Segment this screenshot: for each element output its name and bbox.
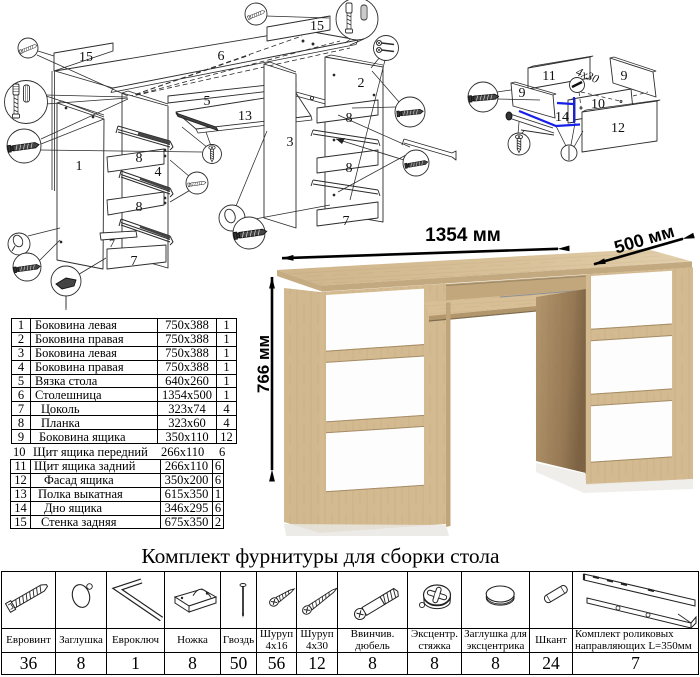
- svg-text:8: 8: [136, 200, 143, 215]
- svg-text:766 мм: 766 мм: [254, 335, 273, 393]
- svg-text:15: 15: [79, 50, 93, 65]
- svg-text:11: 11: [542, 69, 555, 84]
- svg-text:9: 9: [621, 69, 628, 84]
- svg-text:14: 14: [555, 110, 569, 125]
- svg-text:7: 7: [131, 254, 138, 269]
- svg-text:5: 5: [204, 94, 211, 109]
- svg-text:1354 мм: 1354 мм: [425, 225, 501, 246]
- svg-text:8: 8: [346, 161, 353, 176]
- svg-text:3: 3: [287, 135, 294, 150]
- svg-text:7: 7: [109, 236, 115, 250]
- svg-text:6: 6: [218, 49, 225, 64]
- svg-text:12: 12: [611, 121, 625, 136]
- svg-text:10: 10: [591, 97, 605, 112]
- svg-text:8: 8: [136, 151, 143, 166]
- svg-text:7: 7: [343, 214, 350, 229]
- svg-text:4: 4: [155, 165, 162, 180]
- svg-text:9: 9: [519, 86, 526, 101]
- svg-text:1: 1: [76, 159, 83, 174]
- svg-text:13: 13: [238, 109, 252, 124]
- svg-text:8: 8: [346, 111, 353, 126]
- svg-text:2: 2: [358, 76, 365, 91]
- svg-text:15: 15: [310, 19, 324, 34]
